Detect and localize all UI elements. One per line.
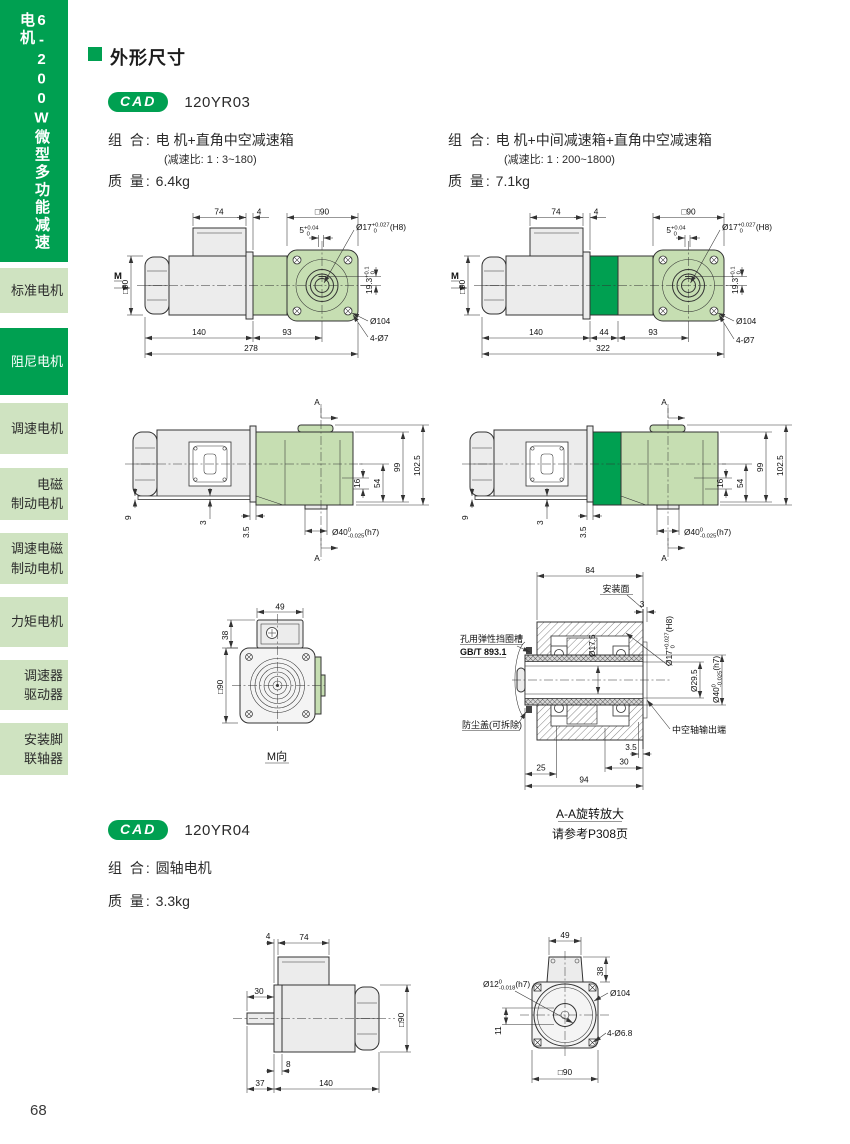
dim-5-tol: 5+0.040 [299, 225, 319, 237]
dim-30: 30 [619, 757, 629, 767]
dim-4x68: 4-Ø6.8 [607, 1028, 633, 1038]
sidebar-item-speed-motor[interactable]: 调速电机 [0, 403, 68, 454]
combo-value: 电 机+中间减速箱+直角中空减速箱 [496, 132, 712, 148]
yr03-left-spec: 组 合: 电 机+直角中空减速箱 (减速比: 1 : 3~180) 质 量: 6… [108, 132, 438, 195]
aa-caption: A-A旋转放大 [556, 806, 624, 821]
motor-gearbox-shapes [137, 228, 371, 330]
dim-19-3-tol: 19.3+0.10 [364, 266, 376, 294]
dim-16: 16 [352, 478, 362, 488]
dim-3-5: 3.5 [578, 526, 588, 538]
dim-sq90-top: □90 [315, 207, 330, 217]
drawing-yr04-side-view: 4 74 30 □90 8 37 140 [225, 925, 455, 1115]
dim-17-tol: Ø17+0.0270(H8) [722, 222, 772, 234]
dim-37: 37 [255, 1078, 265, 1088]
dim-93: 93 [648, 327, 658, 337]
yr04-spec: 组 合: 圆轴电机 质 量: 3.3kg [108, 860, 438, 915]
dim-104: Ø104 [370, 316, 391, 326]
view-m-label: M [451, 271, 459, 282]
dim-17-tol: Ø17+0.0270(H8) [664, 616, 676, 666]
title-bullet-icon [88, 47, 102, 61]
dim-12-tol: Ø120-0.018(h7) [483, 979, 530, 991]
dim-9: 9 [123, 515, 133, 520]
drawing-yr03-top-view-right: 74 4 □90 5+0.040 Ø17+0.0270(H8) 19.3+0.1… [450, 197, 800, 362]
dim-74: 74 [551, 207, 561, 217]
ratio-note: (减速比: 1 : 3~180) [164, 154, 438, 167]
sidebar-item-damping-motor[interactable]: 阻尼电机 [0, 328, 68, 395]
drawing-yr03-side-view-right: A A 16 54 99 102. [450, 392, 800, 572]
drawing-aa-section: 84 安装面 3 Ø17+0.0270(H8) Ø17.5 Ø29.5 Ø400… [420, 562, 780, 852]
dim-4x7: 4-Ø7 [736, 335, 755, 345]
dim-102-5: 102.5 [412, 455, 422, 476]
sidebar-series-block[interactable]: 6-200W微型多功能减速电机 [0, 0, 68, 262]
dim-49: 49 [560, 930, 570, 940]
section-a-top: A [661, 397, 667, 407]
dim-17-tol: Ø17+0.0270(H8) [356, 222, 406, 234]
dim-3-5: 3.5 [625, 742, 637, 752]
ratio-note: (减速比: 1 : 200~1800) [504, 154, 798, 167]
dim-11: 11 [493, 1026, 503, 1035]
section-a-top: A [314, 397, 320, 407]
mass-label: 质 量: [108, 893, 152, 909]
dim-5-tol: 5+0.040 [666, 225, 686, 237]
dim-140: 140 [319, 1078, 333, 1088]
dim-54: 54 [735, 478, 745, 488]
dim-4x7: 4-Ø7 [370, 333, 389, 343]
view-m-label: M [114, 271, 122, 282]
dim-sq90: □90 [558, 1067, 573, 1077]
dim-25: 25 [536, 763, 546, 773]
mass-label: 质 量: [448, 173, 492, 189]
dim-4: 4 [594, 207, 599, 217]
dim-94: 94 [579, 775, 589, 785]
mass-label: 质 量: [108, 173, 152, 189]
sidebar-item-foot-coupling[interactable]: 安装脚 联轴器 [0, 723, 68, 775]
dim-102-5: 102.5 [775, 455, 785, 476]
dim-74: 74 [299, 932, 309, 942]
dim-84: 84 [585, 565, 595, 575]
combo-label: 组 合: [108, 860, 152, 876]
dim-40-tol: Ø400-0.025(h7) [711, 656, 723, 703]
page-title: 外形尺寸 [110, 44, 186, 70]
sidebar-item-standard-motor[interactable]: 标准电机 [0, 268, 68, 313]
dim-3: 3 [198, 520, 208, 525]
dim-322: 322 [596, 343, 610, 353]
drawing-yr03-side-view-left: A A 16 54 99 102. [113, 392, 453, 572]
motor-face-shapes [232, 614, 328, 731]
sidebar-item-speed-em-brake-motor[interactable]: 调速电磁 制动电机 [0, 533, 68, 584]
dim-38: 38 [595, 966, 605, 976]
motor-gearbox-shapes [474, 228, 737, 330]
hollow-shaft-end-label: 中空轴输出端 [672, 724, 726, 735]
dim-29-5: Ø29.5 [689, 669, 699, 692]
dim-30: 30 [254, 986, 264, 996]
section-shapes [512, 609, 672, 749]
combo-value: 电 机+直角中空减速箱 [156, 132, 294, 148]
dim-sq90: □90 [215, 679, 225, 694]
drawing-m-view: 49 38 □90 M向 [215, 600, 355, 770]
drawing-yr04-front-view: 49 38 Ø120-0.018(h7) Ø104 4-Ø6.8 11 □90 [470, 925, 700, 1115]
motor-gearbox-shapes [125, 425, 365, 509]
aa-reference: 请参考P308页 [552, 826, 628, 841]
mount-face-label: 安装面 [602, 583, 629, 594]
m-view-caption: M向 [267, 749, 287, 763]
dim-44: 44 [599, 327, 609, 337]
dim-40-tol: Ø400-0.025(h7) [332, 527, 379, 539]
dust-cover-label: 防尘盖(可拆除) [462, 719, 522, 730]
cad-badge[interactable]: CAD [108, 820, 168, 840]
sidebar-item-torque-motor[interactable]: 力矩电机 [0, 597, 68, 647]
motor-shapes [233, 957, 395, 1052]
cad-badge[interactable]: CAD [108, 92, 168, 112]
dim-3-5: 3.5 [241, 526, 251, 538]
mass-value: 3.3kg [156, 893, 190, 909]
dim-99: 99 [755, 462, 765, 472]
yr04-header: CAD 120YR04 [108, 820, 250, 840]
dim-93: 93 [282, 327, 292, 337]
dim-9: 9 [460, 515, 470, 520]
dim-17-5: Ø17.5 [587, 634, 597, 657]
page-title-row: 外形尺寸 [88, 44, 186, 70]
dim-4: 4 [257, 207, 262, 217]
mass-value: 6.4kg [156, 173, 190, 189]
yr03-right-spec: 组 合: 电 机+中间减速箱+直角中空减速箱 (减速比: 1 : 200~180… [448, 132, 798, 195]
yr03-model-code: 120YR03 [184, 94, 250, 111]
dim-104: Ø104 [610, 988, 631, 998]
dim-3: 3 [535, 520, 545, 525]
sidebar-series-title: 6-200W微型多功能减速电机 [19, 12, 49, 262]
combo-value: 圆轴电机 [156, 860, 212, 876]
catalog-page: 6-200W微型多功能减速电机 标准电机 阻尼电机 调速电机 电磁 制动电机 调… [0, 0, 850, 1144]
dim-3: 3 [640, 599, 645, 609]
dim-40-tol: Ø400-0.025(h7) [684, 527, 731, 539]
combo-label: 组 合: [448, 132, 492, 148]
dim-38: 38 [220, 630, 230, 640]
motor-gearbox-shapes [462, 425, 726, 509]
dim-140: 140 [529, 327, 543, 337]
circlip-label-line1: 孔用弹性挡圈槽 [460, 633, 523, 644]
mass-value: 7.1kg [496, 173, 530, 189]
drawing-yr03-top-view-left: 74 4 □90 5+0.040 Ø17+0.0270(H8) 19.3+0.1… [113, 197, 453, 362]
dim-16: 16 [715, 478, 725, 488]
dim-4: 4 [266, 931, 271, 941]
dim-sq90-top: □90 [681, 207, 696, 217]
dim-140: 140 [192, 327, 206, 337]
page-number: 68 [30, 1102, 47, 1119]
dim-49: 49 [275, 602, 285, 612]
dim-99: 99 [392, 462, 402, 472]
yr03-header: CAD 120YR03 [108, 92, 250, 112]
sidebar-item-controller-driver[interactable]: 调速器 驱动器 [0, 660, 68, 710]
dim-19-3-tol: 19.3+0.10 [730, 266, 742, 294]
dim-54: 54 [372, 478, 382, 488]
section-a-bottom: A [314, 553, 320, 563]
circlip-label-line2: GB/T 893.1 [460, 647, 507, 657]
sidebar-item-em-brake-motor[interactable]: 电磁 制动电机 [0, 468, 68, 520]
dim-278: 278 [244, 343, 258, 353]
dim-sq90: □90 [396, 1012, 406, 1027]
dim-104: Ø104 [736, 316, 757, 326]
dim-74: 74 [214, 207, 224, 217]
yr04-model-code: 120YR04 [184, 822, 250, 839]
combo-label: 组 合: [108, 132, 152, 148]
dim-8: 8 [286, 1059, 291, 1069]
